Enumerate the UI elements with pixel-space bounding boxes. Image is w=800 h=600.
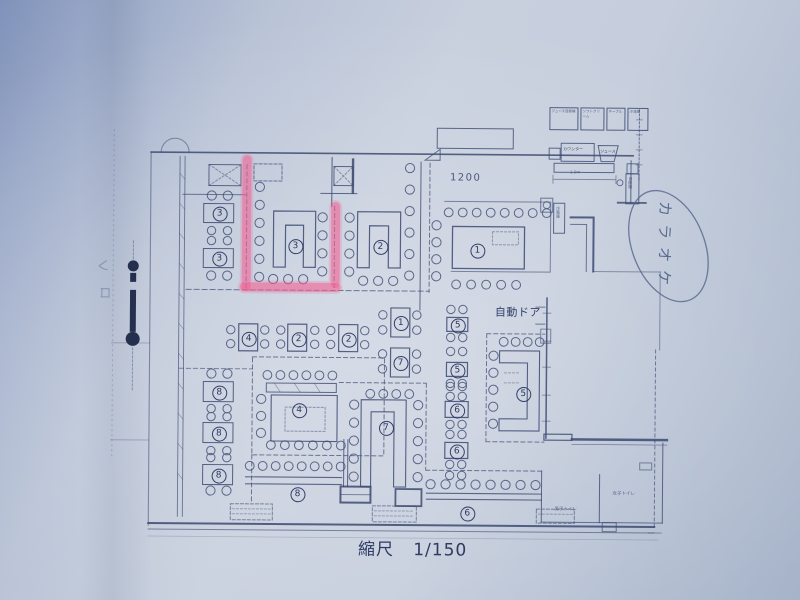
table-number-4: 4 [241,331,256,346]
table-number-3: 3 [288,239,303,254]
table-number-1: 1 [470,243,485,258]
karaoke-char: ケ [656,270,672,286]
photographed-floor-plan: 縮尺 1/150 1200 自動ドア 1.5m ジュース自販機ソフトクリームテー… [0,0,800,600]
table-number-3: 3 [212,251,227,266]
table-number-6: 6 [450,403,465,418]
table-number-2: 2 [291,332,306,347]
table-number-1: 1 [393,315,408,330]
table-number-8: 8 [290,487,305,502]
table-number-2: 2 [341,332,356,347]
table-number-6: 6 [449,444,464,459]
karaoke-char: オ [656,247,672,263]
karaoke-char: カ [656,201,672,217]
table-number-2: 2 [373,239,388,254]
table-number-4: 4 [292,403,307,418]
table-number-markers: 3332142217555476688886 [0,0,800,600]
table-number-7: 7 [378,420,393,435]
karaoke-handwritten-note: カラオケ [656,201,672,285]
table-number-5: 5 [450,363,465,378]
table-number-6: 6 [460,506,475,521]
table-number-7: 7 [393,355,408,370]
table-number-3: 3 [212,206,227,221]
table-number-5: 5 [516,386,531,401]
karaoke-char: ラ [656,224,672,240]
table-number-8: 8 [211,468,226,483]
table-number-5: 5 [450,318,465,333]
table-number-8: 8 [212,385,227,400]
plan-tilt-wrapper: 縮尺 1/150 1200 自動ドア 1.5m ジュース自販機ソフトクリームテー… [0,0,800,600]
table-number-8: 8 [211,426,226,441]
